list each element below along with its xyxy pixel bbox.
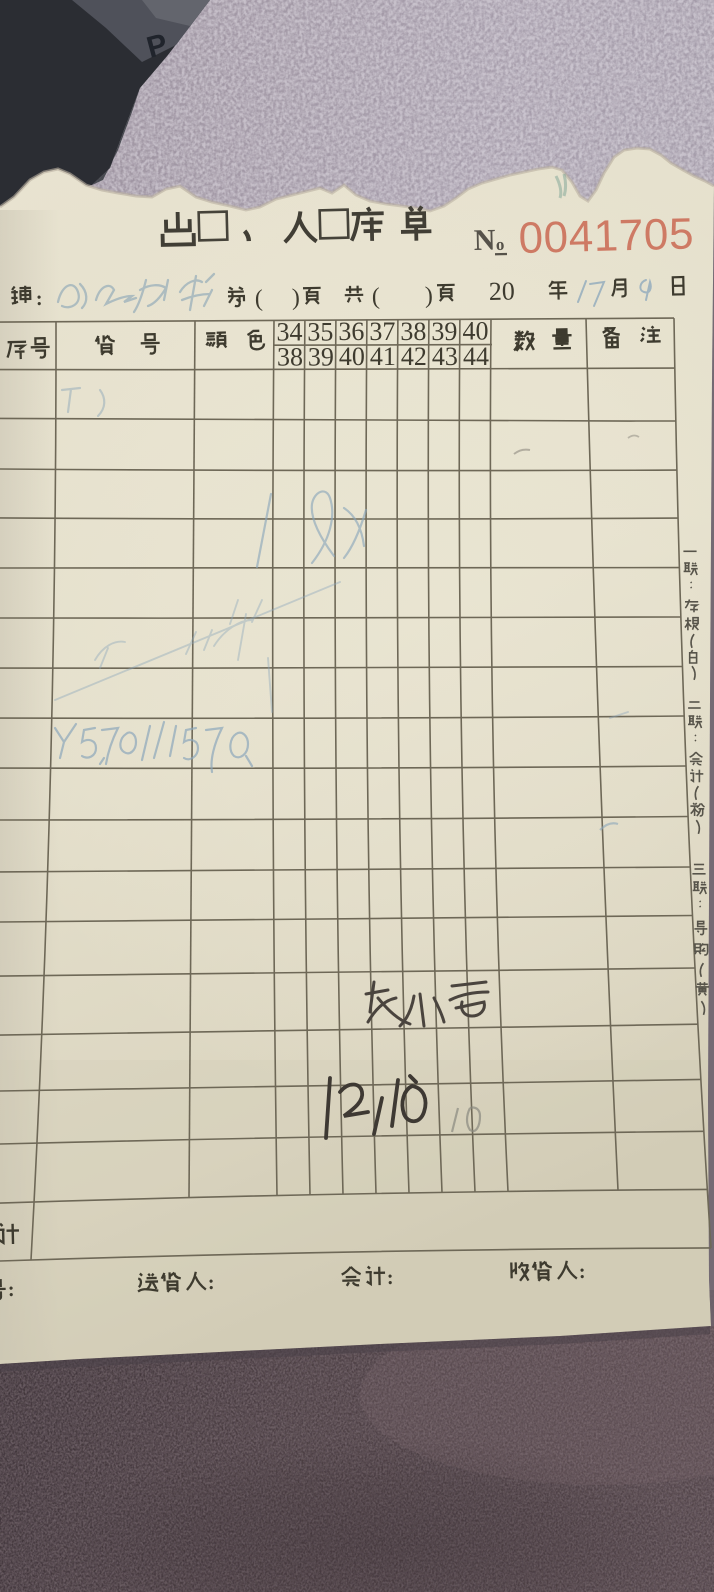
svg-text::: : (208, 1272, 215, 1294)
svg-text:): ) (425, 283, 434, 309)
svg-text:39: 39 (308, 342, 334, 371)
svg-text:(: ( (372, 284, 381, 310)
svg-text:44: 44 (463, 342, 489, 371)
svg-text:0041705: 0041705 (518, 209, 695, 263)
svg-text:42: 42 (401, 342, 427, 371)
svg-text::: : (579, 1261, 586, 1283)
svg-text:20: 20 (488, 276, 515, 306)
svg-text:40: 40 (339, 342, 365, 371)
svg-text::: : (36, 288, 43, 310)
svg-text:): ) (292, 285, 301, 311)
svg-text::: : (8, 1279, 15, 1301)
svg-text:38: 38 (277, 342, 303, 371)
svg-text:41: 41 (370, 342, 396, 371)
svg-text:o: o (496, 235, 505, 254)
svg-text:43: 43 (432, 342, 458, 371)
svg-text::: : (387, 1267, 394, 1289)
svg-text:(: ( (255, 286, 264, 312)
svg-text:N: N (473, 224, 496, 257)
